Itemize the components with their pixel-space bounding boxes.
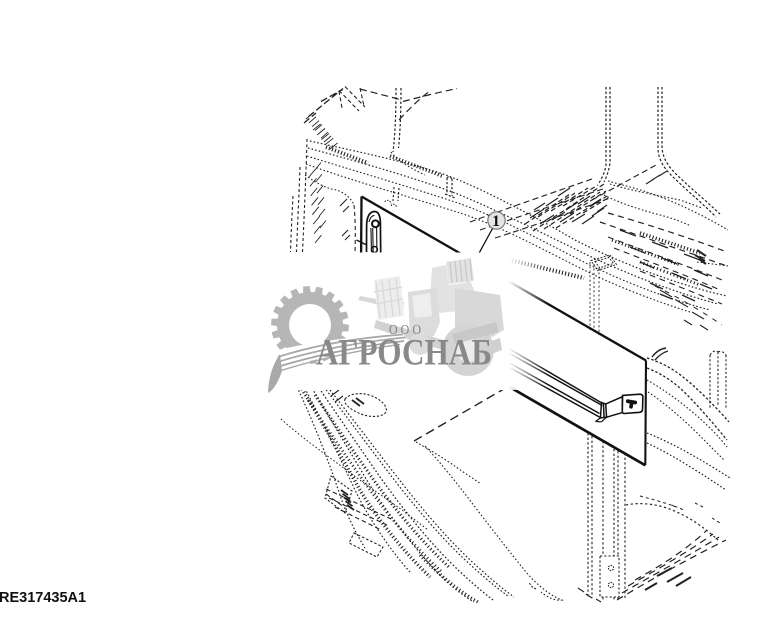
svg-text:1: 1 [492, 213, 500, 230]
svg-text:RE317435A1: RE317435A1 [0, 590, 86, 606]
svg-text:АГРОСНАБ: АГРОСНАБ [316, 333, 492, 374]
